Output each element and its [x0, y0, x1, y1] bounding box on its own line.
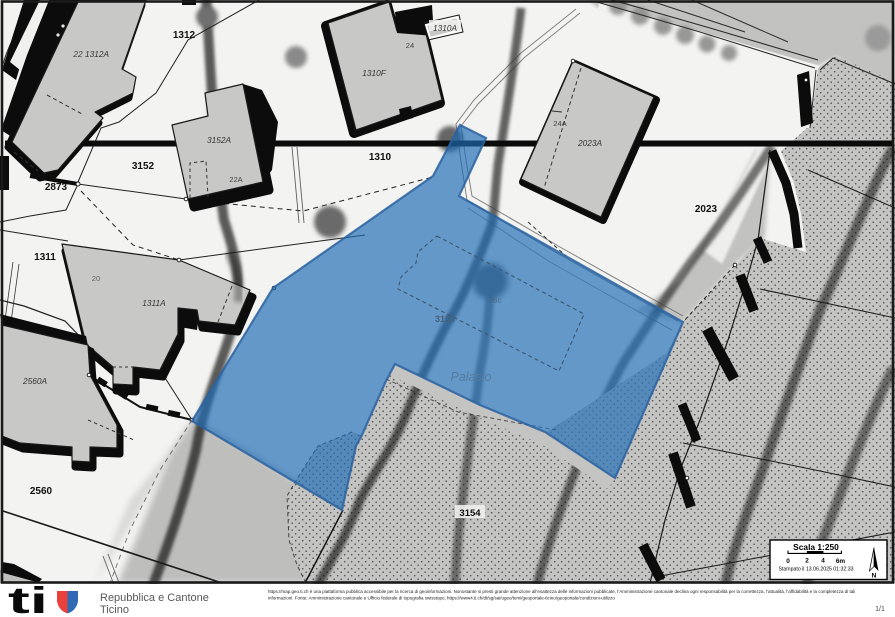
svg-text:Stampato il 13.06.2025 01:32:3: Stampato il 13.06.2025 01:32:33 [779, 567, 854, 573]
svg-text:2: 2 [805, 558, 809, 565]
svg-text:2023: 2023 [695, 204, 718, 215]
svg-text:1310F: 1310F [362, 68, 386, 78]
svg-text:4: 4 [821, 558, 825, 565]
svg-text:20: 20 [92, 274, 100, 283]
svg-text:informazioni. Fonte: Amministr: informazioni. Fonte: Amministrazione can… [268, 596, 615, 601]
svg-text:1/1: 1/1 [875, 606, 885, 613]
svg-text:0: 0 [786, 558, 790, 565]
svg-text:6m: 6m [836, 558, 846, 565]
svg-text:1311: 1311 [34, 252, 56, 263]
svg-text:3154: 3154 [459, 508, 481, 519]
svg-text:36c: 36c [489, 296, 502, 305]
svg-text:1310A: 1310A [433, 23, 457, 33]
svg-text:Ticino: Ticino [100, 604, 129, 616]
svg-text:1312: 1312 [173, 30, 196, 41]
svg-text:Scala 1:250: Scala 1:250 [793, 542, 839, 552]
svg-text:1312A: 1312A [85, 49, 109, 59]
svg-text:3153: 3153 [435, 314, 455, 324]
svg-text:2560: 2560 [30, 486, 53, 497]
svg-text:Palasio: Palasio [451, 370, 492, 384]
svg-text:2873: 2873 [45, 182, 68, 193]
svg-text:ti: ti [8, 580, 48, 617]
svg-text:22A: 22A [229, 175, 243, 184]
svg-text:22: 22 [72, 49, 83, 59]
svg-text:2023A: 2023A [577, 138, 602, 148]
svg-text:3152: 3152 [132, 161, 155, 172]
svg-text:2560A: 2560A [22, 376, 47, 386]
svg-text:24: 24 [406, 41, 414, 50]
svg-text:https://map.geo.ti.ch è una pi: https://map.geo.ti.ch è una piattaforma … [268, 589, 855, 594]
svg-text:Repubblica e Cantone: Repubblica e Cantone [100, 592, 209, 604]
svg-text:1310: 1310 [369, 152, 392, 163]
svg-text:N: N [872, 573, 877, 580]
svg-text:1311A: 1311A [142, 298, 166, 308]
svg-text:3152A: 3152A [207, 135, 231, 145]
svg-text:24A: 24A [553, 119, 567, 128]
